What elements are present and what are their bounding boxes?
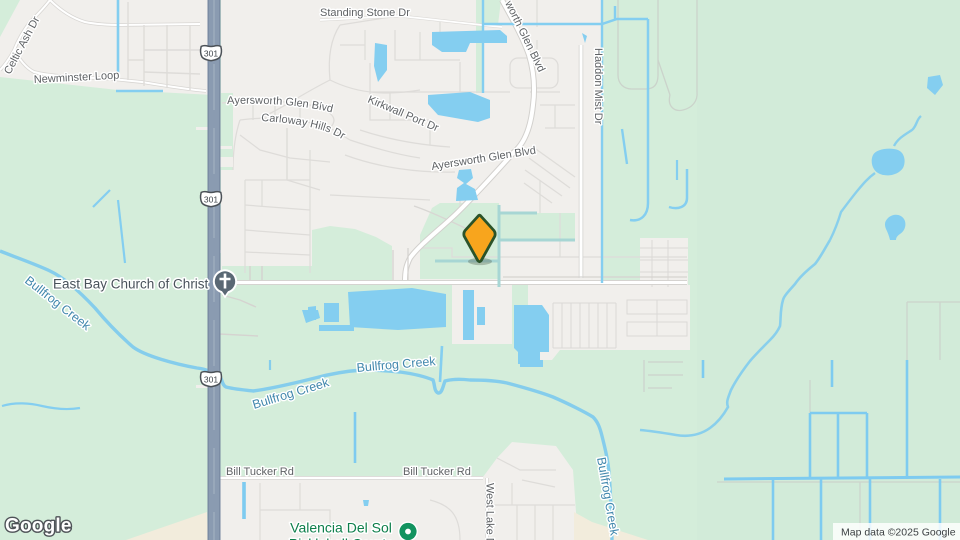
svg-text:Bill Tucker Rd: Bill Tucker Rd <box>403 466 471 478</box>
svg-text:Map data ©2025 Google: Map data ©2025 Google <box>841 527 956 539</box>
svg-text:East Bay Church of Christ: East Bay Church of Christ <box>53 277 209 292</box>
svg-text:Google: Google <box>5 516 72 537</box>
svg-text:Standing Stone Dr: Standing Stone Dr <box>320 7 410 19</box>
svg-text:Bill Tucker Rd: Bill Tucker Rd <box>226 466 294 478</box>
svg-text:West Lake D: West Lake D <box>484 483 496 540</box>
svg-text:Valencia Del Sol: Valencia Del Sol <box>290 520 392 536</box>
svg-text:Pickleball Courts: Pickleball Courts <box>289 536 393 540</box>
svg-text:Haddon Mist Dr: Haddon Mist Dr <box>592 48 604 125</box>
svg-text:301: 301 <box>204 374 218 384</box>
svg-text:301: 301 <box>204 48 218 58</box>
svg-text:301: 301 <box>204 194 218 204</box>
